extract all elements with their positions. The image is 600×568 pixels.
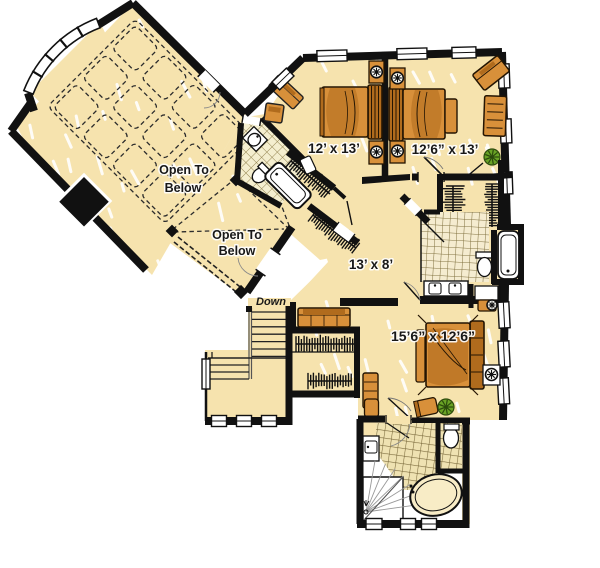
svg-text:13’ x 8’: 13’ x 8’ <box>349 257 393 272</box>
svg-text:Below: Below <box>165 181 202 195</box>
svg-text:Open To: Open To <box>212 228 262 242</box>
svg-text:Down: Down <box>256 296 286 308</box>
svg-text:12’6” x 13’: 12’6” x 13’ <box>412 142 479 157</box>
svg-text:15’6” x 12’6”: 15’6” x 12’6” <box>391 328 475 344</box>
svg-text:Open To: Open To <box>159 163 209 177</box>
svg-text:Below: Below <box>219 244 256 258</box>
svg-text:12’ x 13’: 12’ x 13’ <box>308 141 360 156</box>
